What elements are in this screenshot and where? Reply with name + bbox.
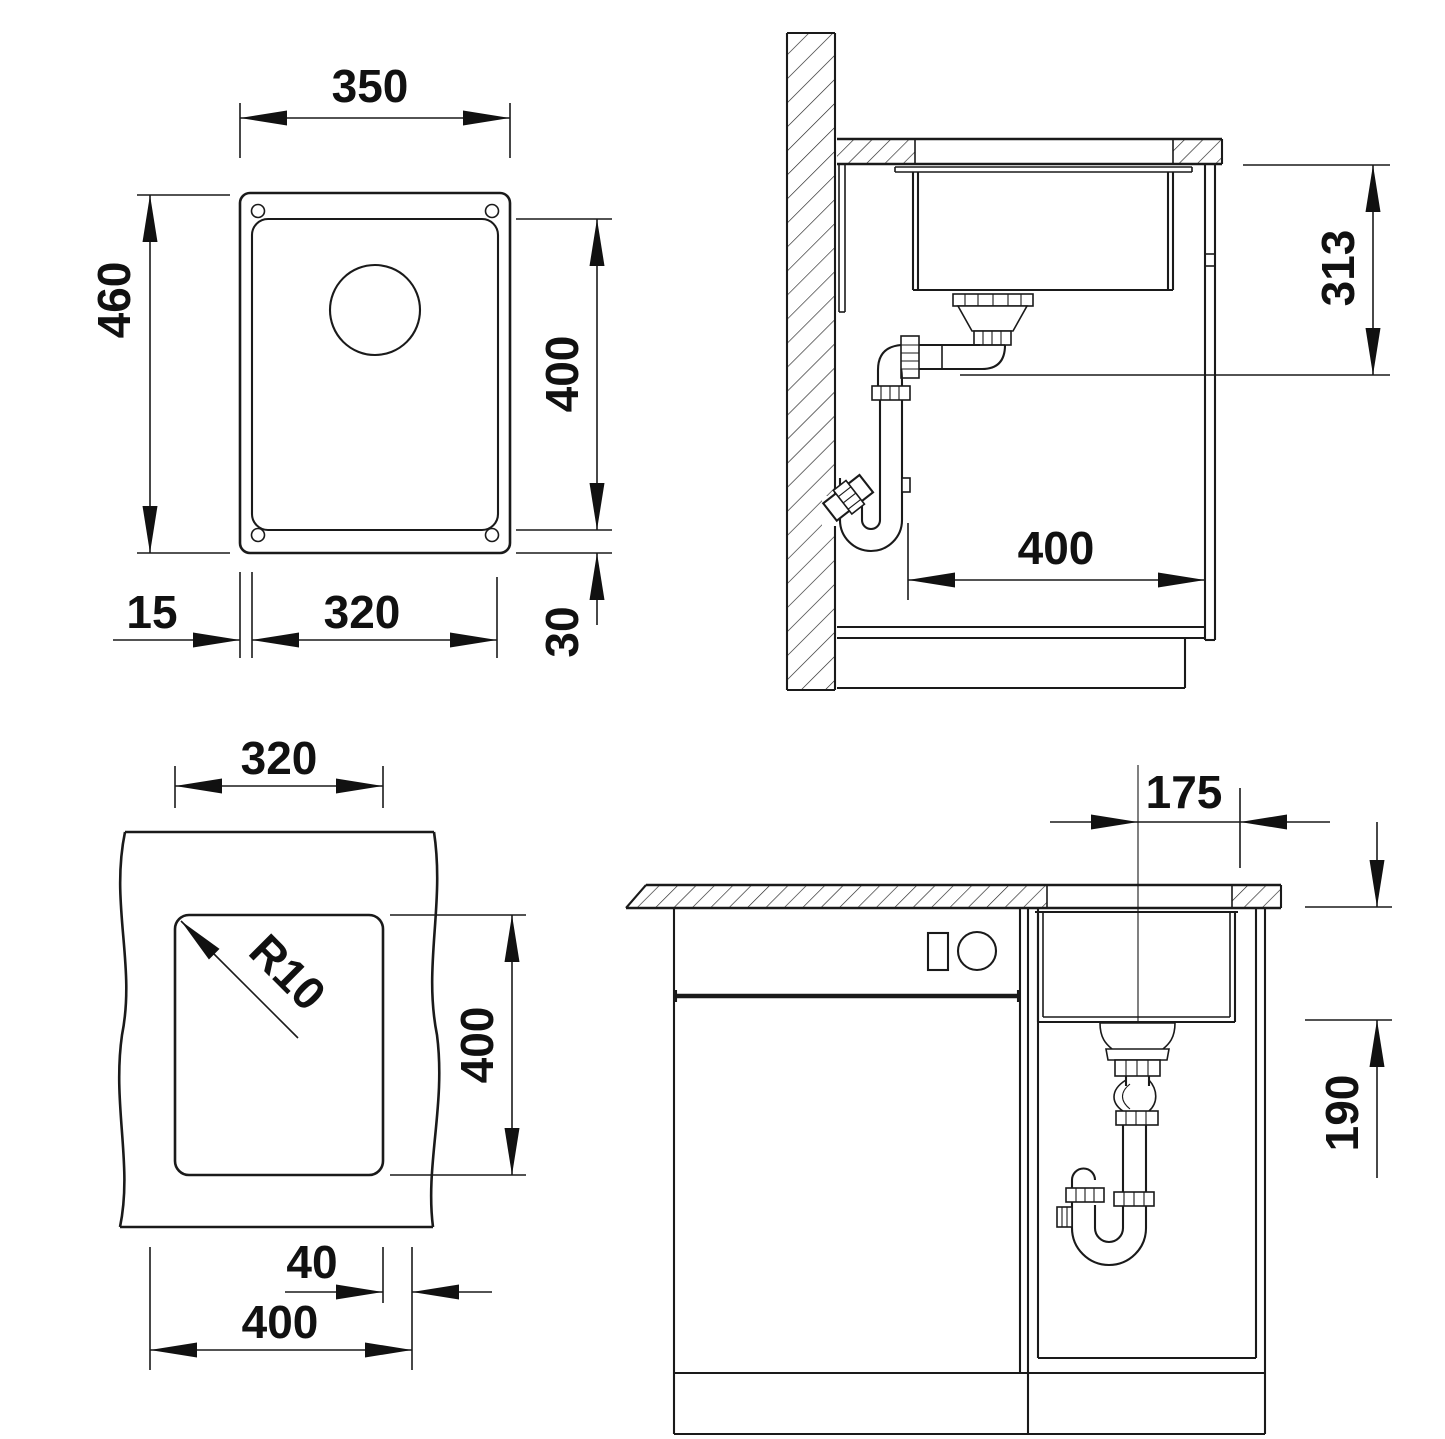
dim-label: 30 — [536, 606, 588, 657]
drawing-canvas: 350 460 400 30 — [0, 0, 1445, 1439]
dim-label: 190 — [1316, 1075, 1368, 1152]
dim-label: 400 — [536, 336, 588, 413]
dim-label: 175 — [1146, 766, 1223, 818]
dim-label: 400 — [1018, 522, 1095, 574]
dim-label: 40 — [286, 1236, 337, 1288]
dim-label: 320 — [324, 586, 401, 638]
technical-drawing: 350 460 400 30 — [0, 0, 1445, 1439]
dim-label: 320 — [241, 732, 318, 784]
dim-label: 350 — [332, 60, 409, 112]
dim-label: 313 — [1312, 230, 1364, 307]
dim-label: 400 — [242, 1296, 319, 1348]
dim-label: 400 — [451, 1007, 503, 1084]
wall-section — [787, 33, 837, 690]
background — [0, 0, 1445, 1439]
dim-label: 15 — [126, 586, 177, 638]
dim-label: 460 — [88, 262, 140, 339]
